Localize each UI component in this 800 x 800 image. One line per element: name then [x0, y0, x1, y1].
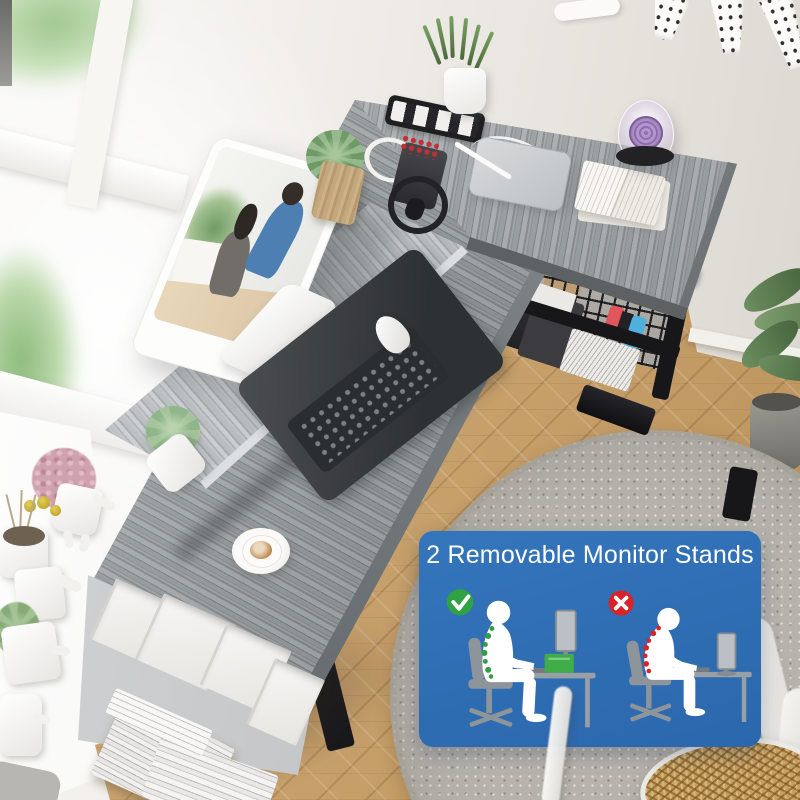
- speaker-purple-core: [629, 116, 663, 150]
- bad-posture-illustration: [605, 583, 757, 733]
- craspedia-flower: [37, 496, 50, 509]
- person-upright: [482, 601, 546, 722]
- robot-planter: [0, 694, 42, 756]
- speaker-base: [616, 146, 674, 166]
- feature-banner: 2 Removable Monitor Stands: [419, 531, 761, 747]
- herb-plant-pot: [444, 68, 486, 114]
- x-icon: [609, 590, 634, 615]
- check-icon: [447, 589, 473, 615]
- wall-corner-shadow: [0, 0, 12, 86]
- green-monitor-stand: [545, 654, 574, 673]
- good-posture-illustration: [443, 581, 603, 739]
- craspedia-flower: [50, 505, 61, 516]
- illustration-monitor-low: [717, 633, 737, 676]
- illustration-monitor: [556, 611, 576, 655]
- banner-title: 2 Removable Monitor Stands: [419, 541, 761, 570]
- product-photo-l-shaped-desk: 2 Removable Monitor Stands: [0, 0, 800, 800]
- latte-art: [250, 541, 272, 559]
- floor-plant-pot-soil: [752, 393, 800, 411]
- planter-soil: [3, 526, 45, 546]
- person-hunched: [644, 608, 705, 716]
